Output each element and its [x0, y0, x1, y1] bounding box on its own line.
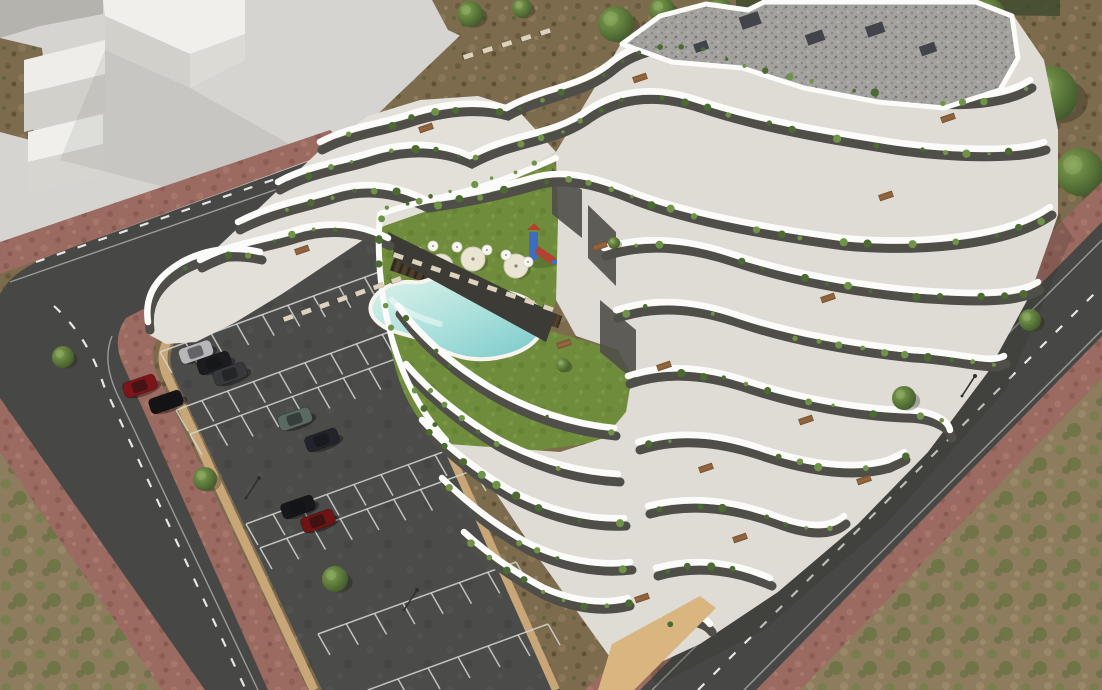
shrub: [939, 418, 944, 423]
shrub: [577, 519, 581, 523]
shrub: [441, 402, 447, 408]
shrub: [225, 251, 232, 258]
shrub: [869, 289, 873, 293]
shrub: [383, 303, 389, 309]
shrub: [767, 120, 772, 125]
shrub: [937, 293, 943, 299]
shrub: [534, 547, 540, 553]
shrub: [428, 388, 433, 393]
render-canvas: [0, 0, 1102, 690]
shrub: [764, 387, 771, 394]
shrub: [517, 141, 524, 148]
shrub: [827, 526, 832, 531]
shrub: [433, 147, 438, 152]
shrub: [385, 205, 389, 209]
shrub: [406, 202, 410, 206]
shrub: [909, 240, 917, 248]
shrub: [959, 99, 966, 106]
shrub: [726, 112, 731, 117]
shrub: [801, 274, 809, 282]
shrub: [622, 310, 630, 318]
shrub: [408, 114, 414, 120]
shrub: [762, 67, 768, 73]
shrub: [825, 282, 829, 286]
shrub: [393, 187, 401, 195]
shrub: [619, 98, 623, 102]
shrub: [970, 359, 975, 364]
shrub: [426, 429, 433, 436]
shrub: [459, 415, 465, 421]
shrub: [305, 172, 312, 179]
shrub: [558, 89, 565, 96]
shrub: [994, 233, 998, 237]
shrub: [411, 145, 419, 153]
shrub: [621, 60, 625, 64]
shrub: [487, 555, 493, 561]
shrub: [912, 293, 920, 301]
shrub: [643, 304, 648, 309]
shrub: [586, 180, 592, 186]
shrub: [431, 108, 439, 116]
umbrella: [523, 257, 533, 267]
shrub: [657, 44, 663, 50]
shrub: [376, 237, 383, 244]
shrub: [457, 155, 460, 158]
shrub: [371, 188, 378, 195]
shrub: [434, 201, 442, 209]
shrub: [312, 227, 316, 231]
shrub: [467, 539, 475, 547]
shrub: [949, 357, 954, 362]
shrub: [459, 458, 467, 466]
shrub: [684, 563, 691, 570]
shrub: [580, 603, 588, 611]
shrub: [447, 364, 451, 368]
shrub: [810, 79, 814, 83]
shrub: [863, 239, 871, 247]
shrub: [328, 164, 334, 170]
shrub: [473, 155, 479, 161]
shrub: [1001, 292, 1008, 299]
shrub: [532, 160, 537, 165]
shrub: [743, 64, 747, 68]
shrub: [608, 429, 614, 435]
shrub: [556, 466, 561, 471]
shrub: [452, 107, 459, 114]
shrub: [831, 404, 834, 407]
shrub: [860, 346, 865, 351]
shrub: [665, 569, 670, 574]
shrub: [346, 131, 351, 136]
shrub: [352, 189, 356, 193]
shrub: [980, 98, 988, 106]
shrub: [920, 147, 924, 151]
shrub: [446, 484, 453, 491]
umbrella: [452, 242, 462, 252]
shrub: [738, 258, 745, 265]
shrub: [677, 369, 685, 377]
shrub: [730, 566, 736, 572]
shrub: [183, 266, 187, 270]
shrub: [977, 293, 985, 301]
shrub: [307, 199, 314, 206]
aerial-render: [0, 0, 1102, 690]
shrub: [500, 186, 508, 194]
shrub: [273, 239, 276, 242]
shrub: [378, 215, 385, 222]
shrub: [816, 339, 821, 344]
shrub: [416, 198, 423, 205]
shrub: [412, 387, 418, 393]
shrub: [691, 213, 697, 219]
umbrella: [501, 250, 511, 260]
shrub: [389, 148, 394, 153]
shrub: [565, 176, 572, 183]
shrub: [656, 506, 662, 512]
shrub: [538, 135, 544, 141]
shrub: [701, 47, 705, 51]
shrub: [516, 540, 522, 546]
shrub: [778, 231, 785, 238]
shrub: [655, 241, 663, 249]
shrub: [350, 160, 353, 163]
shrub: [698, 504, 704, 510]
shrub: [901, 351, 909, 359]
shrub: [840, 238, 848, 246]
shrub: [616, 519, 624, 527]
shrub: [678, 44, 683, 49]
shrub: [952, 239, 959, 246]
shrub: [602, 73, 606, 77]
shrub: [645, 440, 652, 447]
shrub: [245, 252, 251, 258]
shrub: [630, 195, 633, 198]
shrub: [634, 244, 638, 248]
shrub: [704, 104, 711, 111]
shrub: [333, 228, 338, 233]
shrub: [604, 603, 609, 608]
shrub: [512, 492, 520, 500]
shrub: [561, 130, 564, 133]
shrub: [428, 194, 433, 199]
shrub: [619, 565, 627, 573]
shrub: [1019, 290, 1027, 298]
shrub: [835, 341, 842, 348]
shrub: [518, 107, 522, 111]
shrub: [718, 504, 726, 512]
shrub: [992, 363, 996, 367]
shrub: [637, 50, 641, 54]
shrub: [844, 282, 852, 290]
shrub: [987, 152, 990, 155]
shrub: [1005, 148, 1013, 156]
shrub: [330, 196, 334, 200]
shrub: [764, 515, 769, 520]
shrub: [940, 101, 945, 106]
shrub: [599, 108, 604, 113]
shrub: [681, 99, 689, 107]
shrub: [520, 576, 527, 583]
shrub: [388, 325, 394, 331]
shrub: [805, 526, 808, 529]
shrub: [285, 208, 289, 212]
shrub: [403, 315, 409, 321]
shrub: [625, 599, 633, 607]
shrub: [648, 201, 656, 209]
shrub: [421, 405, 428, 412]
shrub: [833, 135, 841, 143]
shrub: [496, 108, 504, 116]
shrub: [881, 349, 888, 356]
shrub: [434, 349, 439, 354]
shrub: [852, 89, 856, 93]
shrub: [797, 458, 804, 465]
shrub: [1015, 224, 1022, 231]
shrub: [924, 353, 932, 361]
shrub: [902, 453, 909, 460]
shrub: [288, 231, 295, 238]
shrub: [776, 454, 782, 460]
shrub: [962, 150, 970, 158]
shrub: [943, 150, 948, 155]
shrub: [494, 441, 500, 447]
shrub: [792, 336, 797, 341]
shrub: [805, 399, 812, 406]
shrub: [814, 463, 822, 471]
shrub: [544, 180, 549, 185]
shrub: [869, 410, 877, 418]
shrub: [375, 260, 382, 267]
shrub: [788, 126, 795, 133]
shrub: [721, 375, 726, 380]
shrub: [514, 170, 518, 174]
umbrella: [428, 241, 438, 251]
shrub: [753, 226, 760, 233]
shrub: [873, 143, 879, 149]
shrub: [1037, 218, 1045, 226]
shrub: [503, 567, 511, 575]
shrub: [562, 598, 566, 602]
shrub: [609, 186, 615, 192]
shrub: [660, 95, 665, 100]
shrub: [783, 522, 788, 527]
shrub: [490, 176, 493, 179]
shrub: [441, 443, 447, 449]
shrub: [668, 440, 671, 443]
shrub: [476, 429, 481, 434]
shrub: [455, 195, 463, 203]
shrub: [477, 195, 483, 201]
shrub: [555, 556, 559, 560]
umbrella: [482, 245, 492, 255]
shrub: [917, 412, 924, 419]
shrub: [577, 118, 582, 123]
shrub: [700, 373, 707, 380]
shrub: [797, 235, 802, 240]
shrub: [667, 621, 673, 627]
shrub: [667, 205, 675, 213]
playground-tower: [529, 232, 538, 260]
shrub: [1024, 87, 1028, 91]
shrub: [535, 504, 542, 511]
shrub: [871, 88, 879, 96]
shrub: [471, 181, 478, 188]
shrub: [432, 422, 437, 427]
shrub: [725, 58, 728, 61]
shrub: [478, 471, 486, 479]
shrub: [761, 267, 764, 270]
shrub: [744, 382, 749, 387]
shrub: [707, 562, 715, 570]
shrub: [786, 73, 793, 80]
shrub: [545, 415, 548, 418]
shrub: [863, 465, 869, 471]
shrub: [492, 481, 500, 489]
shrub: [540, 98, 545, 103]
shrub: [388, 122, 396, 130]
shrub: [541, 590, 545, 594]
shrub: [448, 190, 451, 193]
shrub: [711, 312, 715, 316]
